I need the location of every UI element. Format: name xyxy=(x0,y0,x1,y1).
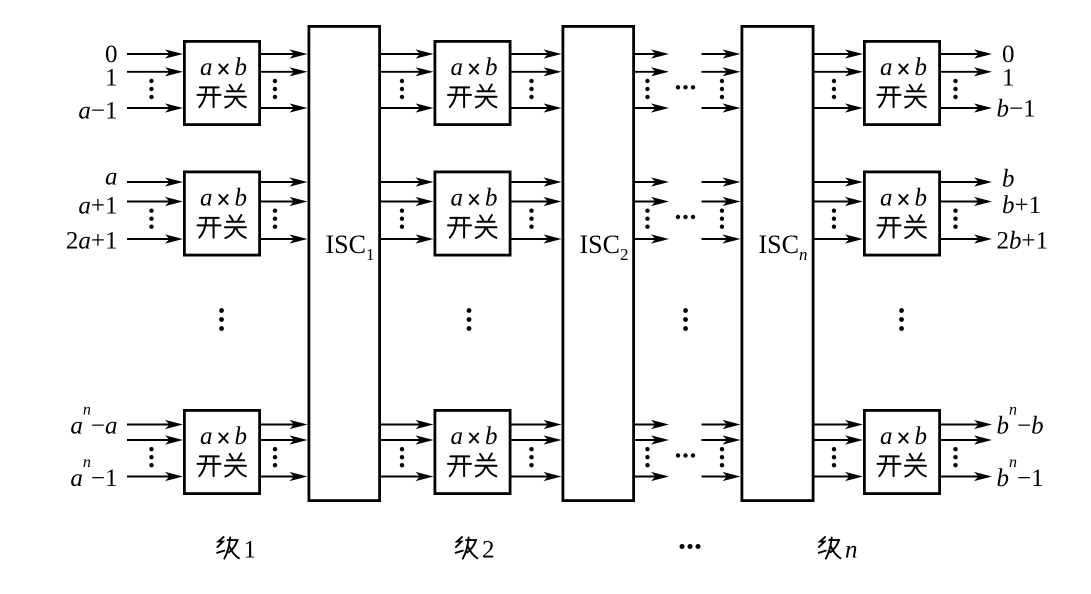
svg-text:a: a xyxy=(880,54,893,81)
svg-text:2a+1: 2a+1 xyxy=(66,228,118,255)
svg-text:b: b xyxy=(1002,166,1015,193)
svg-text:a: a xyxy=(451,54,464,81)
svg-text:b: b xyxy=(485,185,498,212)
svg-text:1: 1 xyxy=(244,537,257,564)
svg-text:b: b xyxy=(485,54,498,81)
svg-text:b: b xyxy=(915,423,928,450)
svg-text:n: n xyxy=(845,537,858,564)
svg-text:1: 1 xyxy=(105,64,118,91)
svg-text:b+1: b+1 xyxy=(1002,192,1041,219)
svg-text:a: a xyxy=(880,185,893,212)
svg-text:b−1: b−1 xyxy=(997,96,1036,123)
svg-text:1: 1 xyxy=(1002,64,1015,91)
svg-text:a: a xyxy=(105,164,118,191)
svg-text:a: a xyxy=(880,423,893,450)
svg-text:a+1: a+1 xyxy=(78,192,117,219)
svg-text:a: a xyxy=(451,185,464,212)
svg-text:a: a xyxy=(200,185,213,212)
svg-text:2b+1: 2b+1 xyxy=(997,228,1049,255)
svg-text:b: b xyxy=(235,54,248,81)
svg-text:b: b xyxy=(915,54,928,81)
svg-text:a: a xyxy=(451,423,464,450)
svg-text:2: 2 xyxy=(482,537,495,564)
svg-text:a−1: a−1 xyxy=(78,98,117,125)
svg-text:a: a xyxy=(200,423,213,450)
svg-text:b: b xyxy=(485,423,498,450)
svg-text:b: b xyxy=(235,185,248,212)
svg-text:b: b xyxy=(235,423,248,450)
svg-text:a: a xyxy=(200,54,213,81)
svg-text:b: b xyxy=(915,185,928,212)
